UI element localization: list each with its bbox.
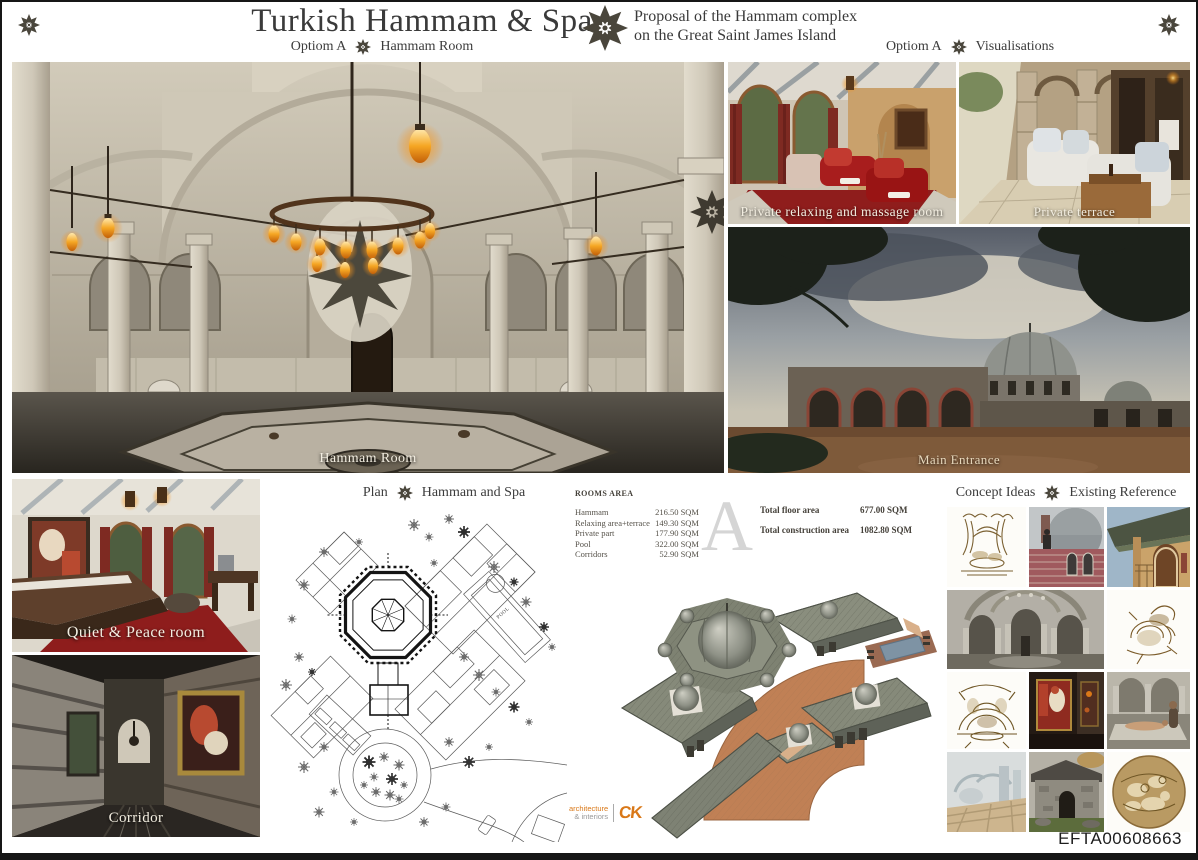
quiet-peace-photo: Quiet & Peace room bbox=[12, 479, 260, 652]
table-row: Private part177.90 SQM bbox=[575, 528, 699, 539]
main-entrance-illustration bbox=[728, 227, 1190, 473]
section-name: Hammam Room bbox=[380, 39, 473, 55]
logo-mark: CK bbox=[618, 803, 643, 823]
sheet-code: EFTA00608663 bbox=[1058, 829, 1182, 849]
reference-collage bbox=[947, 507, 1190, 832]
private-terrace-photo: Private terrace bbox=[959, 62, 1190, 224]
rosette-icon bbox=[397, 485, 413, 501]
reference-hammam-interior bbox=[947, 590, 1104, 669]
room-value: 322.00 SQM bbox=[655, 539, 699, 550]
table-row: Pool322.00 SQM bbox=[575, 539, 699, 550]
presentation-board: Turkish Hammam & Spa Proposal of the Ham… bbox=[0, 0, 1198, 860]
room-value: 177.90 SQM bbox=[655, 528, 699, 539]
private-relaxing-illustration bbox=[728, 62, 956, 224]
table-row: Hammam216.50 SQM bbox=[575, 507, 699, 518]
firm-logo: architecture & interiors CK bbox=[569, 803, 642, 823]
corner-rosette-icon bbox=[1158, 14, 1180, 36]
total-name: Total construction area bbox=[760, 525, 860, 535]
title-rosette-icon bbox=[582, 5, 628, 51]
rooms-area-title: ROOMS AREA bbox=[575, 489, 699, 498]
axonometric-view bbox=[567, 558, 937, 840]
reference-massage-scene bbox=[1107, 672, 1190, 749]
room-value: 216.50 SQM bbox=[655, 507, 699, 518]
room-name: Relaxing area+terrace bbox=[575, 518, 650, 529]
room-name: Pool bbox=[575, 539, 591, 550]
total-row: Total construction area1082.80 SQM bbox=[760, 525, 940, 535]
private-relaxing-photo: Private relaxing and massage room bbox=[728, 62, 956, 224]
corner-rosette-icon bbox=[18, 14, 40, 36]
total-value: 677.00 SQM bbox=[860, 505, 908, 515]
logo-text: architecture & interiors bbox=[569, 805, 608, 822]
logo-line-2: & interiors bbox=[569, 813, 608, 822]
room-value: 149.30 SQM bbox=[655, 518, 699, 529]
site-plan-drawing bbox=[264, 507, 567, 842]
totals-block: Total floor area677.00 SQM Total constru… bbox=[760, 505, 940, 545]
section-name: Visualisations bbox=[976, 39, 1055, 55]
private-terrace-illustration bbox=[959, 62, 1190, 224]
bottom-border-bar bbox=[2, 853, 1196, 858]
section-name: Existing Reference bbox=[1069, 485, 1176, 501]
quiet-peace-illustration bbox=[12, 479, 260, 652]
reference-watercolor-hall bbox=[947, 752, 1026, 832]
page-title: Turkish Hammam & Spa bbox=[250, 3, 594, 40]
subtitle-line-2: on the Great Saint James Island bbox=[634, 26, 857, 45]
room-name: Hammam bbox=[575, 507, 609, 518]
header-hammam-room: Optiom A Hammam Room bbox=[282, 39, 482, 55]
header-plan: Plan Hammam and Spa bbox=[304, 485, 584, 501]
room-name: Private part bbox=[575, 528, 614, 539]
page-subtitle: Proposal of the Hammam complex on the Gr… bbox=[634, 7, 857, 45]
hammam-room-photo: Hammam Room bbox=[12, 62, 724, 473]
header-visualisations: Optiom A Visualisations bbox=[870, 39, 1070, 55]
reference-brick-dome bbox=[1029, 507, 1104, 587]
corridor-photo: Corridor bbox=[12, 655, 260, 837]
reference-pavilion bbox=[1107, 507, 1190, 587]
corridor-illustration bbox=[12, 655, 260, 837]
reference-sketch-ornament bbox=[947, 507, 1026, 587]
axonometric-illustration bbox=[567, 558, 937, 840]
section-name: Concept Ideas bbox=[956, 485, 1036, 501]
main-entrance-photo: Main Entrance bbox=[728, 227, 1190, 473]
option-letter-watermark: A bbox=[701, 491, 753, 561]
option-label: Optiom A bbox=[886, 39, 942, 55]
total-value: 1082.80 SQM bbox=[860, 525, 912, 535]
header-concept: Concept Ideas Existing Reference bbox=[942, 485, 1190, 501]
reference-painting-gallery bbox=[1029, 672, 1104, 749]
table-row: Relaxing area+terrace149.30 SQM bbox=[575, 518, 699, 529]
rosette-icon bbox=[355, 39, 371, 55]
total-row: Total floor area677.00 SQM bbox=[760, 505, 940, 515]
reference-fountain-sketch bbox=[1107, 590, 1190, 669]
section-name: Plan bbox=[363, 485, 388, 501]
reference-engraving bbox=[1107, 752, 1190, 832]
reference-old-building bbox=[1029, 752, 1104, 832]
subtitle-line-1: Proposal of the Hammam complex bbox=[634, 7, 857, 26]
rosette-icon bbox=[1044, 485, 1060, 501]
total-name: Total floor area bbox=[760, 505, 860, 515]
hammam-room-illustration bbox=[12, 62, 724, 473]
reference-interior-sketch bbox=[947, 672, 1026, 749]
option-label: Optiom A bbox=[291, 39, 347, 55]
site-plan-illustration bbox=[264, 507, 567, 842]
section-name: Hammam and Spa bbox=[422, 485, 525, 501]
logo-divider bbox=[613, 804, 614, 822]
rosette-icon bbox=[951, 39, 967, 55]
